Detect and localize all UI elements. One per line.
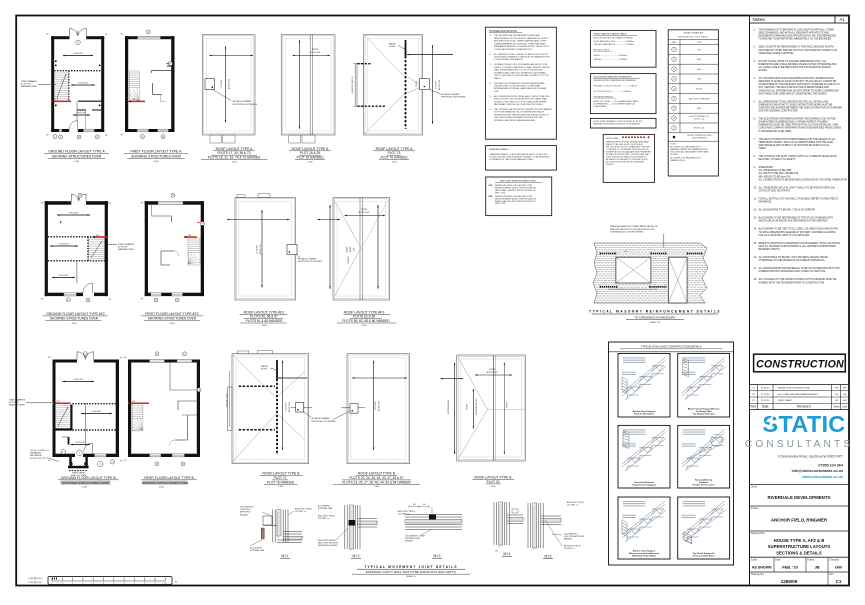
- svg-text:HOUSE TYPE A, AF2 & B: HOUSE TYPE A, AF2 & B: [774, 538, 825, 543]
- svg-text:ALL PADSTONES TO BE MIN. C35 C: ALL PADSTONES TO BE MIN. C35 CONCRETE UN…: [759, 256, 829, 259]
- svg-text:LINTEL SCHEDULE: LINTEL SCHEDULE: [683, 32, 703, 34]
- svg-text:staticconsultants.co.uk: staticconsultants.co.uk: [802, 475, 844, 479]
- svg-text:M10 GALV. M12 STRAPS AT TRUSSE: M10 GALV. M12 STRAPS AT TRUSSED RAFTERS …: [494, 82, 545, 85]
- svg-text:AT 600 CRS: AT 600 CRS: [359, 211, 370, 214]
- svg-text:IF INFORMATION IS RE-USED.: IF INFORMATION IS RE-USED.: [759, 130, 793, 133]
- svg-text:PN: PN: [835, 394, 838, 396]
- svg-text:STATIC: STATIC: [762, 411, 845, 437]
- svg-text:L4: L4: [79, 195, 81, 197]
- svg-text:IS FOR INFORMATION ONLY. HOWEV: IS FOR INFORMATION ONLY. HOWEVER ANY MAJ…: [494, 111, 545, 114]
- svg-text:BETWEEN JOINTS).: BETWEEN JOINTS).: [759, 249, 781, 251]
- svg-text:GROUND FLOOR LAYOUT TYPE B: GROUND FLOOR LAYOUT TYPE B: [61, 476, 117, 480]
- svg-text:Date: Date: [762, 404, 769, 408]
- svg-text:6.: 6.: [754, 119, 756, 121]
- svg-text:L2: L2: [673, 59, 675, 61]
- svg-text:PLOT 70 HANDED: PLOT 70 HANDED: [380, 156, 408, 160]
- svg-text:WP: WP: [46, 135, 49, 137]
- svg-text:STAIR TRIMMERS: STAIR TRIMMERS: [9, 399, 26, 402]
- svg-text:PROVIDED BY THIRD PARTIES SUCH: PROVIDED BY THIRD PARTIES SUCH AS TOPOGR…: [759, 49, 838, 52]
- svg-text:AS SHOWN: AS SHOWN: [752, 565, 772, 569]
- svg-text:150CRS.: 150CRS.: [606, 164, 614, 166]
- svg-text:17.03.20: 17.03.20: [761, 394, 770, 396]
- svg-text:WP: WP: [124, 357, 127, 359]
- svg-text:& DETAILED BY THE TRUSS MANUFA: & DETAILED BY THE TRUSS MANUFACTURER.: [490, 158, 535, 161]
- svg-text:1:100: 1:100: [361, 325, 367, 327]
- svg-text:FIRST DRAFT: FIRST DRAFT: [778, 399, 793, 402]
- svg-text:CN/K: CN/K: [697, 79, 702, 81]
- svg-text:CONSTRUCTION: CONSTRUCTION: [756, 359, 844, 371]
- svg-text:17.: 17.: [754, 268, 758, 270]
- svg-text:1:100: 1:100: [307, 161, 313, 163]
- svg-text:ANCON RT2 TIES @: ANCON RT2 TIES @: [567, 501, 584, 504]
- svg-text:ROOF LAYOUT TYPE B: ROOF LAYOUT TYPE B: [475, 476, 513, 480]
- svg-text:HALF JOINT (DBL WITH: HALF JOINT (DBL WITH: [318, 542, 339, 545]
- svg-text:MJ 1: MJ 1: [282, 554, 289, 558]
- svg-text:1.: 1.: [754, 30, 756, 32]
- svg-text:L1: L1: [673, 49, 675, 51]
- svg-text:14: 14: [162, 136, 164, 138]
- svg-text:TYPE: TYPE: [697, 42, 703, 44]
- svg-text:Checked:: Checked:: [829, 558, 839, 561]
- svg-text:MJ 4: MJ 4: [504, 552, 511, 556]
- svg-text:TYPICAL POSI-JOIST CONSTRUCTIO: TYPICAL POSI-JOIST CONSTRUCTION DETAILS: [641, 345, 702, 349]
- svg-text:CHECKING ALL INFORMATION ON SI: CHECKING ALL INFORMATION ON SITE PRIOR T…: [759, 89, 840, 92]
- svg-text:BLOCKWORK TO BE RESTRAINED AT: BLOCKWORK TO BE RESTRAINED AT TOP OF U/S…: [759, 217, 834, 220]
- svg-text:HD/K: HD/K: [697, 59, 702, 61]
- svg-text:DATUM.: DATUM.: [759, 69, 768, 72]
- svg-text:GROUND FLOOR LAYOUT TYPE AF2: GROUND FLOOR LAYOUT TYPE AF2: [46, 312, 105, 316]
- svg-text:POSI-JOIST: POSI-JOIST: [76, 442, 85, 444]
- svg-text:ROOF LAYOUT TYPE A: ROOF LAYOUT TYPE A: [216, 147, 253, 151]
- svg-text:WP: WP: [105, 34, 108, 36]
- svg-text:T20 WALL DIMENSIONS SLEEVES AT: T20 WALL DIMENSIONS SLEEVES AT 450 VERT.…: [759, 231, 836, 234]
- svg-text:SUPPORTED ON TRUSSES: SUPPORTED ON TRUSSES: [298, 261, 323, 263]
- svg-text:PLATES TO BE FIXED TO TOP OF S: PLATES TO BE FIXED TO TOP OF STEELWORK W…: [494, 100, 547, 103]
- svg-text:LIGHTS AND DORMERS TO ARCHITEC: LIGHTS AND DORMERS TO ARCHITECTS DRAWING…: [494, 56, 550, 59]
- svg-text:Structural Steel Beam: Structural Steel Beam: [693, 555, 715, 558]
- svg-text:ANCON RT2 TIES @: ANCON RT2 TIES @: [398, 510, 415, 513]
- svg-text:No LOCATIONS MINOR AMENDMENTS: No LOCATIONS MINOR AMENDMENTS: [778, 393, 818, 396]
- svg-text:SPACER: SPACER: [261, 365, 269, 368]
- svg-text:TRUSS: TRUSS: [507, 401, 509, 408]
- svg-text:Project:: Project:: [751, 507, 759, 510]
- svg-text:14: 14: [156, 464, 158, 466]
- svg-text:VERT. CRS.: VERT. CRS.: [495, 192, 506, 194]
- svg-text:DIMENSIONS ARE IN MILLIMETRES: DIMENSIONS ARE IN MILLIMETRES UNLESS NOT…: [759, 63, 837, 66]
- svg-text:14: 14: [78, 137, 80, 139]
- svg-text:TRUSSED RAFTER NOTE: TRUSSED RAFTER NOTE: [489, 30, 517, 33]
- svg-text:Drawn:: Drawn:: [807, 558, 815, 561]
- svg-text:15.: 15.: [754, 243, 758, 245]
- svg-text:(2No OPENINGS): (2No OPENINGS): [692, 138, 707, 140]
- svg-text:ALL STEELWORK TO BE S355: ALL STEELWORK TO BE S355: [759, 169, 792, 172]
- svg-text:WINDOWS, ANCHOR 225 (2)40 WELD: WINDOWS, ANCHOR 225 (2)40 WELD AT 225 CR…: [610, 228, 655, 231]
- svg-text:FEB. '20: FEB. '20: [782, 564, 798, 569]
- svg-text:AT 600 CRS: AT 600 CRS: [228, 78, 231, 89]
- svg-text:MIN. WELDS TO BE 6mm FW: MIN. WELDS TO BE 6mm FW: [759, 176, 791, 178]
- svg-text:1st TO U/S of ROOF............: 1st TO U/S of ROOF......................…: [594, 90, 632, 93]
- svg-text:PLOTS 55, 63, 65 & 66 HANDED: PLOTS 55, 63, 65 & 66 HANDED: [342, 319, 390, 323]
- svg-text:DEVIATION FROM THAT SHOWN MUST: DEVIATION FROM THAT SHOWN MUST BE REPORT…: [494, 113, 550, 116]
- svg-text:SUPPORTED ON TRUSSES: SUPPORTED ON TRUSSES: [233, 104, 258, 106]
- svg-text:L4: L4: [172, 195, 174, 197]
- svg-text:PLOT 76 HANDED: PLOT 76 HANDED: [267, 480, 295, 484]
- svg-text:Masonry Internal Loadbearing: Masonry Internal Loadbearing: [629, 552, 659, 555]
- svg-text:18.: 18.: [754, 279, 758, 281]
- svg-text:100: 100: [413, 504, 416, 506]
- svg-text:AT 600: AT 600: [349, 247, 352, 252]
- svg-text:CONSULTANTS: CONSULTANTS: [745, 439, 853, 450]
- svg-text:ISSUED FOR CONSTRUCTION: ISSUED FOR CONSTRUCTION: [778, 388, 810, 390]
- svg-text:HIP VALUE CHIMNEY: HIP VALUE CHIMNEY: [311, 417, 331, 420]
- svg-text:2.: 2.: [754, 47, 756, 49]
- svg-text:L7: L7: [673, 108, 675, 110]
- svg-text:HD/K: HD/K: [697, 108, 702, 110]
- svg-text:Partitions: Partitions: [699, 481, 709, 484]
- svg-text:1:100: 1:100: [153, 161, 159, 163]
- svg-text:SCALE 1:20: SCALE 1:20: [650, 321, 660, 324]
- svg-text:SPANDREL PANEL S1: SPANDREL PANEL S1: [351, 76, 354, 93]
- svg-text:TRUSS: TRUSS: [489, 369, 496, 371]
- svg-text:PLOTS 50, 56 & 57: PLOTS 50, 56 & 57: [250, 315, 278, 319]
- svg-text:(EXCLUSIONS PART OF TIMBER TRU: (EXCLUSIONS PART OF TIMBER TRUSSES): [594, 37, 633, 40]
- svg-text:14: 14: [155, 300, 157, 302]
- svg-text:225 VERT. c/c: 225 VERT. c/c: [318, 518, 329, 520]
- svg-text:(KEYSTONE UNO - 100mm CAVITY): (KEYSTONE UNO - 100mm CAVITY): [678, 35, 708, 38]
- svg-text:JOINT WITH APPROVED: JOINT WITH APPROVED: [564, 535, 585, 538]
- svg-text:ENGINEERTS DRAWINGS AND SPECIF: ENGINEERTS DRAWINGS AND SPECIFICATION. A…: [759, 35, 837, 38]
- svg-text:1:200: 1:200: [28, 582, 34, 584]
- svg-text:FOUND ARE TO BE REPORTED IMMED: FOUND ARE TO BE REPORTED IMMEDIATELY TO …: [759, 38, 833, 41]
- svg-text:24.06.20: 24.06.20: [761, 388, 770, 390]
- svg-text:BJR: BJR: [489, 196, 493, 198]
- svg-text:TRUSS: TRUSS: [416, 80, 418, 87]
- svg-text:FIRST FLOOR LAYOUT TYPE AF2: FIRST FLOOR LAYOUT TYPE AF2: [145, 312, 198, 316]
- svg-text:WP: WP: [120, 358, 123, 360]
- svg-text:Chk: Chk: [842, 404, 847, 408]
- svg-text:DEBONDING SLEEVES: DEBONDING SLEEVES: [318, 545, 338, 547]
- svg-text:THE TRUSSED RAFTER MANUFACTURE: THE TRUSSED RAFTER MANUFACTURERS ARE: [494, 34, 540, 37]
- svg-text:MANUFACTURER: MANUFACTURER: [9, 404, 25, 407]
- svg-text:BEARING (UNO): BEARING (UNO): [671, 159, 686, 162]
- svg-text:STAINLESS WATER DUCTS AND WATE: STAINLESS WATER DUCTS AND WATER PAD BELO…: [610, 225, 658, 228]
- svg-text:GROUND FLOOR LAYOUT TYPE A: GROUND FLOOR LAYOUT TYPE A: [48, 150, 105, 154]
- svg-text:1:100: 1:100: [74, 161, 80, 163]
- svg-text:AT 600 CRS: AT 600 CRS: [438, 79, 441, 90]
- svg-text:2No HI-DUTY PRECAST: 2No HI-DUTY PRECAST: [689, 97, 711, 100]
- svg-text:DRILLED WITH 12mm HOLES AT M08: DRILLED WITH 12mm HOLES AT M08 CRS STAGG…: [494, 98, 548, 101]
- svg-text:WP: WP: [109, 299, 112, 301]
- svg-text:L6: L6: [198, 390, 200, 392]
- svg-text:REFER TO ARCHITECTS DRAWINGS F: REFER TO ARCHITECTS DRAWINGS FOR MOVEMEN…: [759, 242, 841, 245]
- svg-text:14: 14: [96, 137, 98, 139]
- svg-text:Rev:: Rev:: [829, 573, 834, 576]
- svg-text:MJ 5: MJ 5: [545, 555, 552, 559]
- svg-text:SHOWING STRUCTURES OVER: SHOWING STRUCTURES OVER: [62, 481, 110, 485]
- svg-text:L4: L4: [77, 42, 79, 44]
- svg-text:EXTERNAL CAVITY WALL TIES TO B: EXTERNAL CAVITY WALL TIES TO BE ANCON RT…: [366, 570, 456, 574]
- svg-text:4 TRUSS AT 600 CRS: 4 TRUSS AT 600 CRS: [475, 398, 478, 416]
- svg-text:BOX/K: BOX/K: [696, 89, 703, 91]
- svg-text:m: m: [175, 581, 177, 584]
- svg-text:L6: L6: [201, 223, 203, 225]
- svg-text:ROOF LAYOUT TYPE B: ROOF LAYOUT TYPE B: [263, 472, 301, 476]
- svg-text:POSI-JOIST: POSI-JOIST: [74, 379, 83, 381]
- svg-text:TIMES.: TIMES.: [759, 148, 767, 150]
- svg-text:SUPPORTED ON TRUSSES: SUPPORTED ON TRUSSES: [441, 97, 466, 99]
- svg-text:PLOT 33: PLOT 33: [487, 480, 500, 484]
- svg-text:POSI-JOIST: POSI-JOIST: [69, 213, 78, 215]
- svg-text:AND ERECTION OF ALL TIMBER RAF: AND ERECTION OF ALL TIMBER RAFTERS AND O…: [494, 40, 547, 43]
- svg-text:CRS) TO BE USED TO SECURE WALL: CRS) TO BE USED TO SECURE WALL PLATES TO…: [494, 74, 549, 77]
- svg-text:100: 100: [495, 551, 498, 553]
- svg-text:7.: 7.: [754, 139, 756, 141]
- svg-text:ANCON PPS TIES AT: ANCON PPS TIES AT: [318, 539, 337, 542]
- svg-text:PLOT 16 & 29: PLOT 16 & 29: [300, 151, 320, 155]
- svg-text:14: 14: [99, 464, 101, 466]
- svg-text:ALL BOLTS TO BE M16, GRADE [8.: ALL BOLTS TO BE M16, GRADE [8.8]: [759, 172, 799, 175]
- svg-text:ALTERNATIVELY.......1:1:6 (CEM: ALTERNATIVELY.......1:1:6 (CEMENT:SAND) …: [594, 103, 636, 106]
- svg-text:@ A1: @ A1: [37, 577, 43, 580]
- svg-text:13 TRUSS: 13 TRUSS: [286, 402, 288, 411]
- svg-text:SUITABLE GALV. GALV. M12 STRAP: SUITABLE GALV. GALV. M12 STRAPS AT 1200C…: [494, 71, 547, 74]
- svg-text:WORKS.: WORKS.: [671, 154, 679, 156]
- svg-text:Rev: Rev: [751, 404, 757, 408]
- svg-text:POSI-JOIST: POSI-JOIST: [92, 411, 101, 413]
- svg-text:ANCHOR FIELD, RINGMER: ANCHOR FIELD, RINGMER: [771, 518, 828, 523]
- svg-text:LOCATION AND ORIENTATION.: LOCATION AND ORIENTATION.: [494, 58, 524, 61]
- svg-text:UC1: UC1: [188, 235, 191, 237]
- svg-text:POSI-JOIST: POSI-JOIST: [59, 275, 68, 277]
- svg-text:Drawing No:: Drawing No:: [751, 573, 764, 576]
- svg-text:SERVICES IS GIVEN IN GOOD FAIT: SERVICES IS GIVEN IN GOOD FAITH BUT ITS …: [759, 80, 837, 83]
- svg-text:SUPPORTED ON TRUSSES: SUPPORTED ON TRUSSES: [311, 421, 336, 423]
- svg-text:1:100: 1:100: [71, 323, 77, 325]
- svg-text:Horizontal Restraint: Horizontal Restraint: [634, 481, 654, 484]
- svg-text:L8: L8: [673, 118, 675, 120]
- svg-text:1: 1: [54, 136, 55, 138]
- svg-text:SHOWING STRUCTURES OVER: SHOWING STRUCTURES OVER: [131, 155, 181, 159]
- svg-text:1:100: 1:100: [82, 487, 88, 489]
- svg-text:CHECKED AND AGREED BETWEEN THE: CHECKED AND AGREED BETWEEN THE SUB-CONTR…: [759, 106, 843, 109]
- svg-text:Top Chord Support To: Top Chord Support To: [693, 552, 716, 555]
- svg-text:Client:: Client:: [751, 486, 758, 489]
- svg-text:Drawing Title:: Drawing Title:: [751, 532, 766, 535]
- svg-text:DIMENSIONS RELATING TO SUB-CON: DIMENSIONS RELATING TO SUB-CONTRACTORS W…: [759, 103, 833, 106]
- svg-text:SPACER: SPACER: [347, 256, 350, 264]
- svg-text:WP: WP: [141, 299, 144, 301]
- svg-text:10.: 10.: [754, 187, 758, 189]
- svg-text:On Hanger With: On Hanger With: [696, 410, 712, 413]
- svg-text:PLOT 33 HANDED: PLOT 33 HANDED: [296, 156, 324, 160]
- svg-text:(UNLESS NOTED OTHERWISE ON DRA: (UNLESS NOTED OTHERWISE ON DRAWINGS): [594, 79, 636, 82]
- svg-text:SPACER: SPACER: [389, 42, 397, 45]
- svg-text:Bottom Chord Support Masonry: Bottom Chord Support Masonry: [688, 407, 720, 410]
- svg-text:HIP VALUE CHIMNEY: HIP VALUE CHIMNEY: [441, 93, 461, 96]
- svg-text:MJ 3: MJ 3: [434, 554, 441, 558]
- svg-text:ALL BLOCKWORK TO BE MIN. 7.3N: ALL BLOCKWORK TO BE MIN. 7.3N IN DG MORT…: [759, 209, 816, 212]
- svg-text:SEALANT: SEALANT: [405, 540, 414, 543]
- svg-text:PLASTICISER): PLASTICISER): [594, 105, 607, 108]
- svg-text:TIMBER MEMBERS INCLUDING ALL T: TIMBER MEMBERS INCLUDING ALL TEMPORARY A…: [494, 42, 546, 45]
- svg-text:JB: JB: [814, 564, 819, 569]
- svg-text:BJR: BJR: [489, 185, 493, 187]
- svg-text:Top Support Restraint: Top Support Restraint: [693, 413, 715, 416]
- svg-text:TRUSS: TRUSS: [361, 209, 368, 211]
- svg-text:AT 600 CRS: AT 600 CRS: [259, 244, 262, 255]
- svg-text:WP: WP: [121, 135, 124, 137]
- svg-text:AT 600 CRS: AT 600 CRS: [288, 401, 291, 412]
- svg-text:SCALE 1:5: SCALE 1:5: [406, 575, 415, 578]
- svg-text:8.: 8.: [754, 156, 756, 158]
- svg-text:13 TRUSS: 13 TRUSS: [375, 401, 377, 410]
- svg-text:INTERNAL AND EXTERNAL GABLE WA: INTERNAL AND EXTERNAL GABLE WALLS AT 200…: [494, 87, 547, 90]
- svg-text:STAIR TRIMMERS: STAIR TRIMMERS: [21, 80, 38, 83]
- svg-text:SHOWING STRUCTURES OVER: SHOWING STRUCTURES OVER: [52, 155, 102, 159]
- svg-text:ROOF LAYOUT TYPE A: ROOF LAYOUT TYPE A: [292, 147, 329, 151]
- svg-text:FIRST FLOOR LAYOUT TYPE B: FIRST FLOOR LAYOUT TYPE B: [144, 476, 194, 480]
- svg-text:ANY CHANGES TO THE WORKS SHOWN: ANY CHANGES TO THE WORKS SHOWN ON THIS D…: [759, 278, 837, 281]
- svg-text:Parallel To Posi-Joists: Parallel To Posi-Joists: [693, 484, 716, 487]
- svg-text:AND THE GENERAL CONTRACTOR.: AND THE GENERAL CONTRACTOR.: [759, 110, 799, 113]
- svg-text:1:100: 1:100: [28, 578, 34, 580]
- svg-text:TRUSS: TRUSS: [312, 49, 319, 51]
- svg-text:Bottom Chord Support: Bottom Chord Support: [633, 549, 656, 552]
- svg-text:FOR 10mm MORTAR JOINT AT COLUM: FOR 10mm MORTAR JOINT AT COLUMN FACE.: [759, 234, 811, 237]
- svg-text:L6: L6: [169, 63, 171, 65]
- svg-text:12mm AEROFIL 1 JOINT: 12mm AEROFIL 1 JOINT: [405, 535, 426, 538]
- svg-text:MAINTENANCE AND STABILITY OF E: MAINTENANCE AND STABILITY OF EXISTING BU…: [759, 144, 831, 147]
- svg-text:@ A2: @ A2: [37, 581, 43, 584]
- svg-text:CEILING LEVEL TO BE PROVIDED T: CEILING LEVEL TO BE PROVIDED TO RESTRAIN: [494, 84, 541, 87]
- svg-text:ANCON RT2 TIES @: ANCON RT2 TIES @: [318, 515, 335, 518]
- svg-text:TRUSS: TRUSS: [467, 403, 469, 410]
- svg-text:WP: WP: [48, 460, 51, 462]
- svg-text:PLOT 72: PLOT 72: [274, 476, 287, 480]
- svg-text:9.: 9.: [754, 167, 756, 169]
- svg-text:AT 600 CRS: AT 600 CRS: [487, 371, 498, 374]
- svg-text:PLOTS 61 & 68 HANDED: PLOTS 61 & 68 HANDED: [246, 319, 283, 323]
- svg-text:(MAX 6m CENTRES IN BLOCKWORK &: (MAX 6m CENTRES IN BLOCKWORK & 12m CENTR…: [759, 245, 837, 248]
- svg-text:THE TRUSSED RAFTER LAYOUT SHOW: THE TRUSSED RAFTER LAYOUT SHOWN ON THIS …: [494, 108, 552, 111]
- svg-text:C1: C1: [836, 579, 842, 584]
- svg-text:12mm AEROFIL 1: 12mm AEROFIL 1: [564, 533, 579, 536]
- svg-text:SBSC ACCEPTS NO RESPONSIBILITY: SBSC ACCEPTS NO RESPONSIBILITY FOR INACC…: [759, 46, 834, 49]
- svg-text:1:100: 1:100: [231, 161, 237, 163]
- svg-text:TRUSS: TRUSS: [347, 246, 349, 253]
- svg-text:L1: L1: [156, 354, 158, 356]
- svg-text:POSI-JOIST: POSI-JOIST: [73, 53, 82, 55]
- svg-text:TRUSS: TRUSS: [389, 46, 396, 48]
- svg-text:RIVERDALE DEVELOPMENTS: RIVERDALE DEVELOPMENTS: [768, 495, 831, 500]
- svg-text:5.: 5.: [754, 101, 756, 103]
- svg-text:CEILING.......................: CEILING.................................…: [594, 58, 629, 61]
- svg-text:1:100: 1:100: [261, 325, 267, 327]
- svg-text:MJ 2: MJ 2: [353, 554, 360, 558]
- svg-text:PLOTS 23, 25, 27, 35, 40, 44,: PLOTS 23, 25, 27, 35, 40, 44, 50 & 54 HA…: [342, 480, 411, 484]
- svg-text:SHOWING STRUCTURES OVER: SHOWING STRUCTURES OVER: [148, 317, 197, 321]
- svg-text:07955 224 964: 07955 224 964: [818, 463, 844, 467]
- svg-text:1:100: 1:100: [169, 323, 175, 325]
- svg-text:15: 15: [111, 462, 113, 464]
- svg-text:OTHERWISE ON THE DRAWINGS OR I: OTHERWISE ON THE DRAWINGS OR IN BEAM SCH…: [759, 259, 826, 262]
- svg-text:SEALANT: SEALANT: [564, 538, 573, 541]
- svg-text:PLOTS 17, 30, 36 & 73: PLOTS 17, 30, 36 & 73: [218, 151, 251, 155]
- svg-text:BLOCKWORK TO BE TIED TO ALL ST: BLOCKWORK TO BE TIED TO ALL STEEL COLUMN…: [759, 228, 839, 231]
- svg-text:Non-Loadbearing: Non-Loadbearing: [695, 478, 713, 481]
- svg-text:AND TAKING DUE CARE WHILST UND: AND TAKING DUE CARE WHILST UNDERTAKING T…: [759, 92, 828, 95]
- svg-text:L4: L4: [147, 32, 149, 34]
- svg-text:UC1: UC1: [132, 401, 135, 403]
- svg-text:CRS.: CRS.: [494, 91, 499, 93]
- svg-text:L5: L5: [673, 88, 675, 90]
- svg-text:SEALANT: SEALANT: [240, 513, 249, 516]
- svg-text:TYPICAL MASONRY REINFORCEMENT: TYPICAL MASONRY REINFORCEMENT DETAILS: [589, 309, 721, 313]
- svg-text:UC1: UC1: [96, 235, 99, 237]
- svg-text:PERMANENT BRACING, NOGGINS PIE: PERMANENT BRACING, NOGGINS PIECES, TRUSS…: [494, 45, 550, 48]
- svg-text:HD/K: HD/K: [697, 69, 702, 71]
- svg-text:THE MAIN CONTRACTOR IS RESPONS: THE MAIN CONTRACTOR IS RESPONSIBLE FOR T…: [759, 138, 837, 141]
- svg-text:DRAWINGS.: DRAWINGS.: [759, 201, 773, 204]
- svg-text:HIP VALUE CHIMNEY: HIP VALUE CHIMNEY: [233, 100, 253, 103]
- svg-text:25.8: 25.8: [624, 251, 627, 253]
- svg-text:A1: A1: [839, 17, 845, 22]
- svg-text:AGREED WITH THE ENGINEER PRIOR: AGREED WITH THE ENGINEER PRIOR TO CONSTR…: [759, 281, 826, 284]
- svg-text:Notes:: Notes:: [753, 17, 766, 22]
- svg-text:11.: 11.: [754, 198, 757, 200]
- svg-text:VERT. CRS.: VERT. CRS.: [495, 203, 506, 205]
- svg-text:8 TRUSS: 8 TRUSS: [436, 80, 438, 88]
- svg-text:HI-DUTY PRECAST OR: HI-DUTY PRECAST OR: [689, 115, 709, 118]
- svg-text:LOOSE RAFTERS AND STRAPPING ET: LOOSE RAFTERS AND STRAPPING ETC.: [494, 48, 533, 51]
- svg-text:TO OPENINGS IN MASONRY: TO OPENINGS IN MASONRY: [634, 315, 676, 319]
- svg-text:NOTE:-: NOTE:-: [671, 144, 678, 146]
- svg-text:225 VERT. c/c: 225 VERT. c/c: [295, 511, 306, 513]
- svg-text:Drwn: Drwn: [834, 404, 841, 408]
- svg-text:ALL DIMENSIONS TO BE CHECKED O: ALL DIMENSIONS TO BE CHECKED ON SITE. AL…: [759, 100, 829, 103]
- svg-text:NOT CERTAIN, THE MAIN CONTRACT: NOT CERTAIN, THE MAIN CONTRACTOR IS RESP…: [759, 86, 830, 89]
- svg-text:11 TRUSS: 11 TRUSS: [221, 79, 223, 88]
- svg-text:BOTH PLOTS 72/76: BOTH PLOTS 72/76: [30, 458, 46, 460]
- svg-text:USED TO CONNECT RAFTERS TO WAL: USED TO CONNECT RAFTERS TO WALL PLATES. …: [494, 66, 550, 69]
- svg-text:WP: WP: [124, 460, 127, 462]
- svg-text:COATS OF ZINC RICH PAINT.: COATS OF ZINC RICH PAINT.: [759, 189, 791, 192]
- svg-text:PN: PN: [835, 388, 838, 390]
- svg-text:ASTM. DPC LEVEL......1:1:4 (CE: ASTM. DPC LEVEL......1:1:4 (CEMENT:LIME:…: [594, 100, 639, 103]
- svg-text:WP: WP: [46, 34, 49, 36]
- svg-text:TYPICAL MOVEMENT JOINT DETAILS: TYPICAL MOVEMENT JOINT DETAILS: [364, 565, 457, 569]
- svg-text:THE ELECTRONIC INFORMATION FRO: THE ELECTRONIC INFORMATION FROM THIS DRA…: [759, 118, 837, 121]
- svg-text:THIS DRAWING IS TO BE READ IN: THIS DRAWING IS TO BE READ IN CONJUNCTIO…: [759, 29, 834, 32]
- svg-text:2: 2: [60, 137, 61, 139]
- svg-text:12.02.20: 12.02.20: [761, 400, 770, 402]
- svg-text:14: 14: [141, 136, 143, 138]
- svg-text:PLOT 75: PLOT 75: [388, 151, 401, 155]
- svg-text:SUITABLE TRUSS CLIPS OR FRAMIN: SUITABLE TRUSS CLIPS OR FRAMING ANCHORS …: [494, 63, 548, 66]
- svg-text:TRUSS: TRUSS: [261, 369, 268, 371]
- svg-text:ROOF LAYOUT TYPE A: ROOF LAYOUT TYPE A: [376, 147, 413, 151]
- svg-text:4.: 4.: [754, 78, 756, 80]
- svg-text:UC1: UC1: [57, 401, 60, 403]
- svg-text:L3: L3: [673, 69, 675, 71]
- svg-text:100: 100: [423, 504, 426, 506]
- svg-text:WP: WP: [121, 34, 124, 36]
- svg-text:ROOF LAYOUT TYPE B: ROOF LAYOUT TYPE B: [358, 472, 396, 476]
- svg-text:225 VERT. c/c: 225 VERT. c/c: [564, 548, 575, 550]
- svg-text:1:100: 1:100: [374, 486, 380, 488]
- svg-text:HIP VALUE CHIMNEY: HIP VALUE CHIMNEY: [298, 257, 318, 260]
- svg-text:ALL STEELWORK INCLS IN CAVITY: ALL STEELWORK INCLS IN CAVITY WALLS TO B…: [759, 186, 836, 189]
